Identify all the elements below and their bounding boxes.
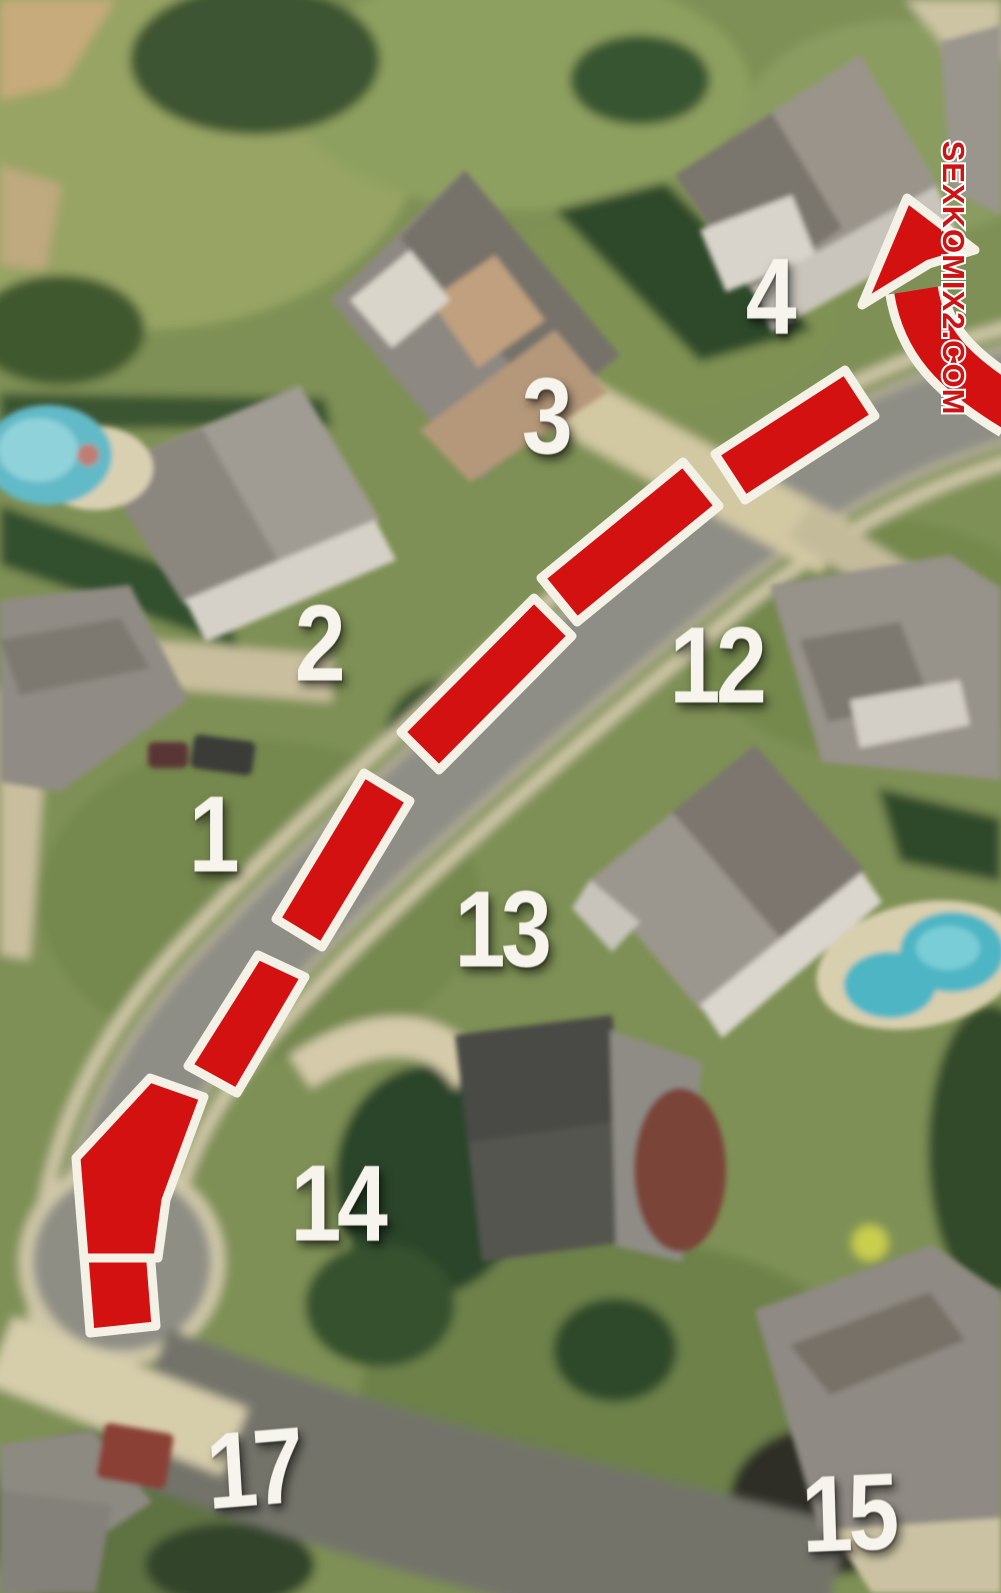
lot-label-13: 13: [454, 876, 547, 984]
yellow-bush: [852, 1225, 888, 1261]
lot-label-12: 12: [669, 612, 762, 720]
lot-label-4: 4: [746, 243, 793, 351]
aerial-photo-scene: SEXKOMIX2.COM: [0, 0, 1001, 1593]
watermark: SEXKOMIX2.COM: [936, 141, 971, 416]
lot-label-3: 3: [522, 363, 569, 471]
lot-label-14: 14: [290, 1150, 383, 1258]
aerial-map: SEXKOMIX2.COM 1 2 3 4 12 13 14 15 17: [0, 0, 1001, 1593]
lot-label-1: 1: [189, 781, 236, 889]
lot-label-15: 15: [800, 1458, 896, 1570]
lot-label-17: 17: [203, 1411, 302, 1527]
lot-label-2: 2: [295, 590, 342, 698]
